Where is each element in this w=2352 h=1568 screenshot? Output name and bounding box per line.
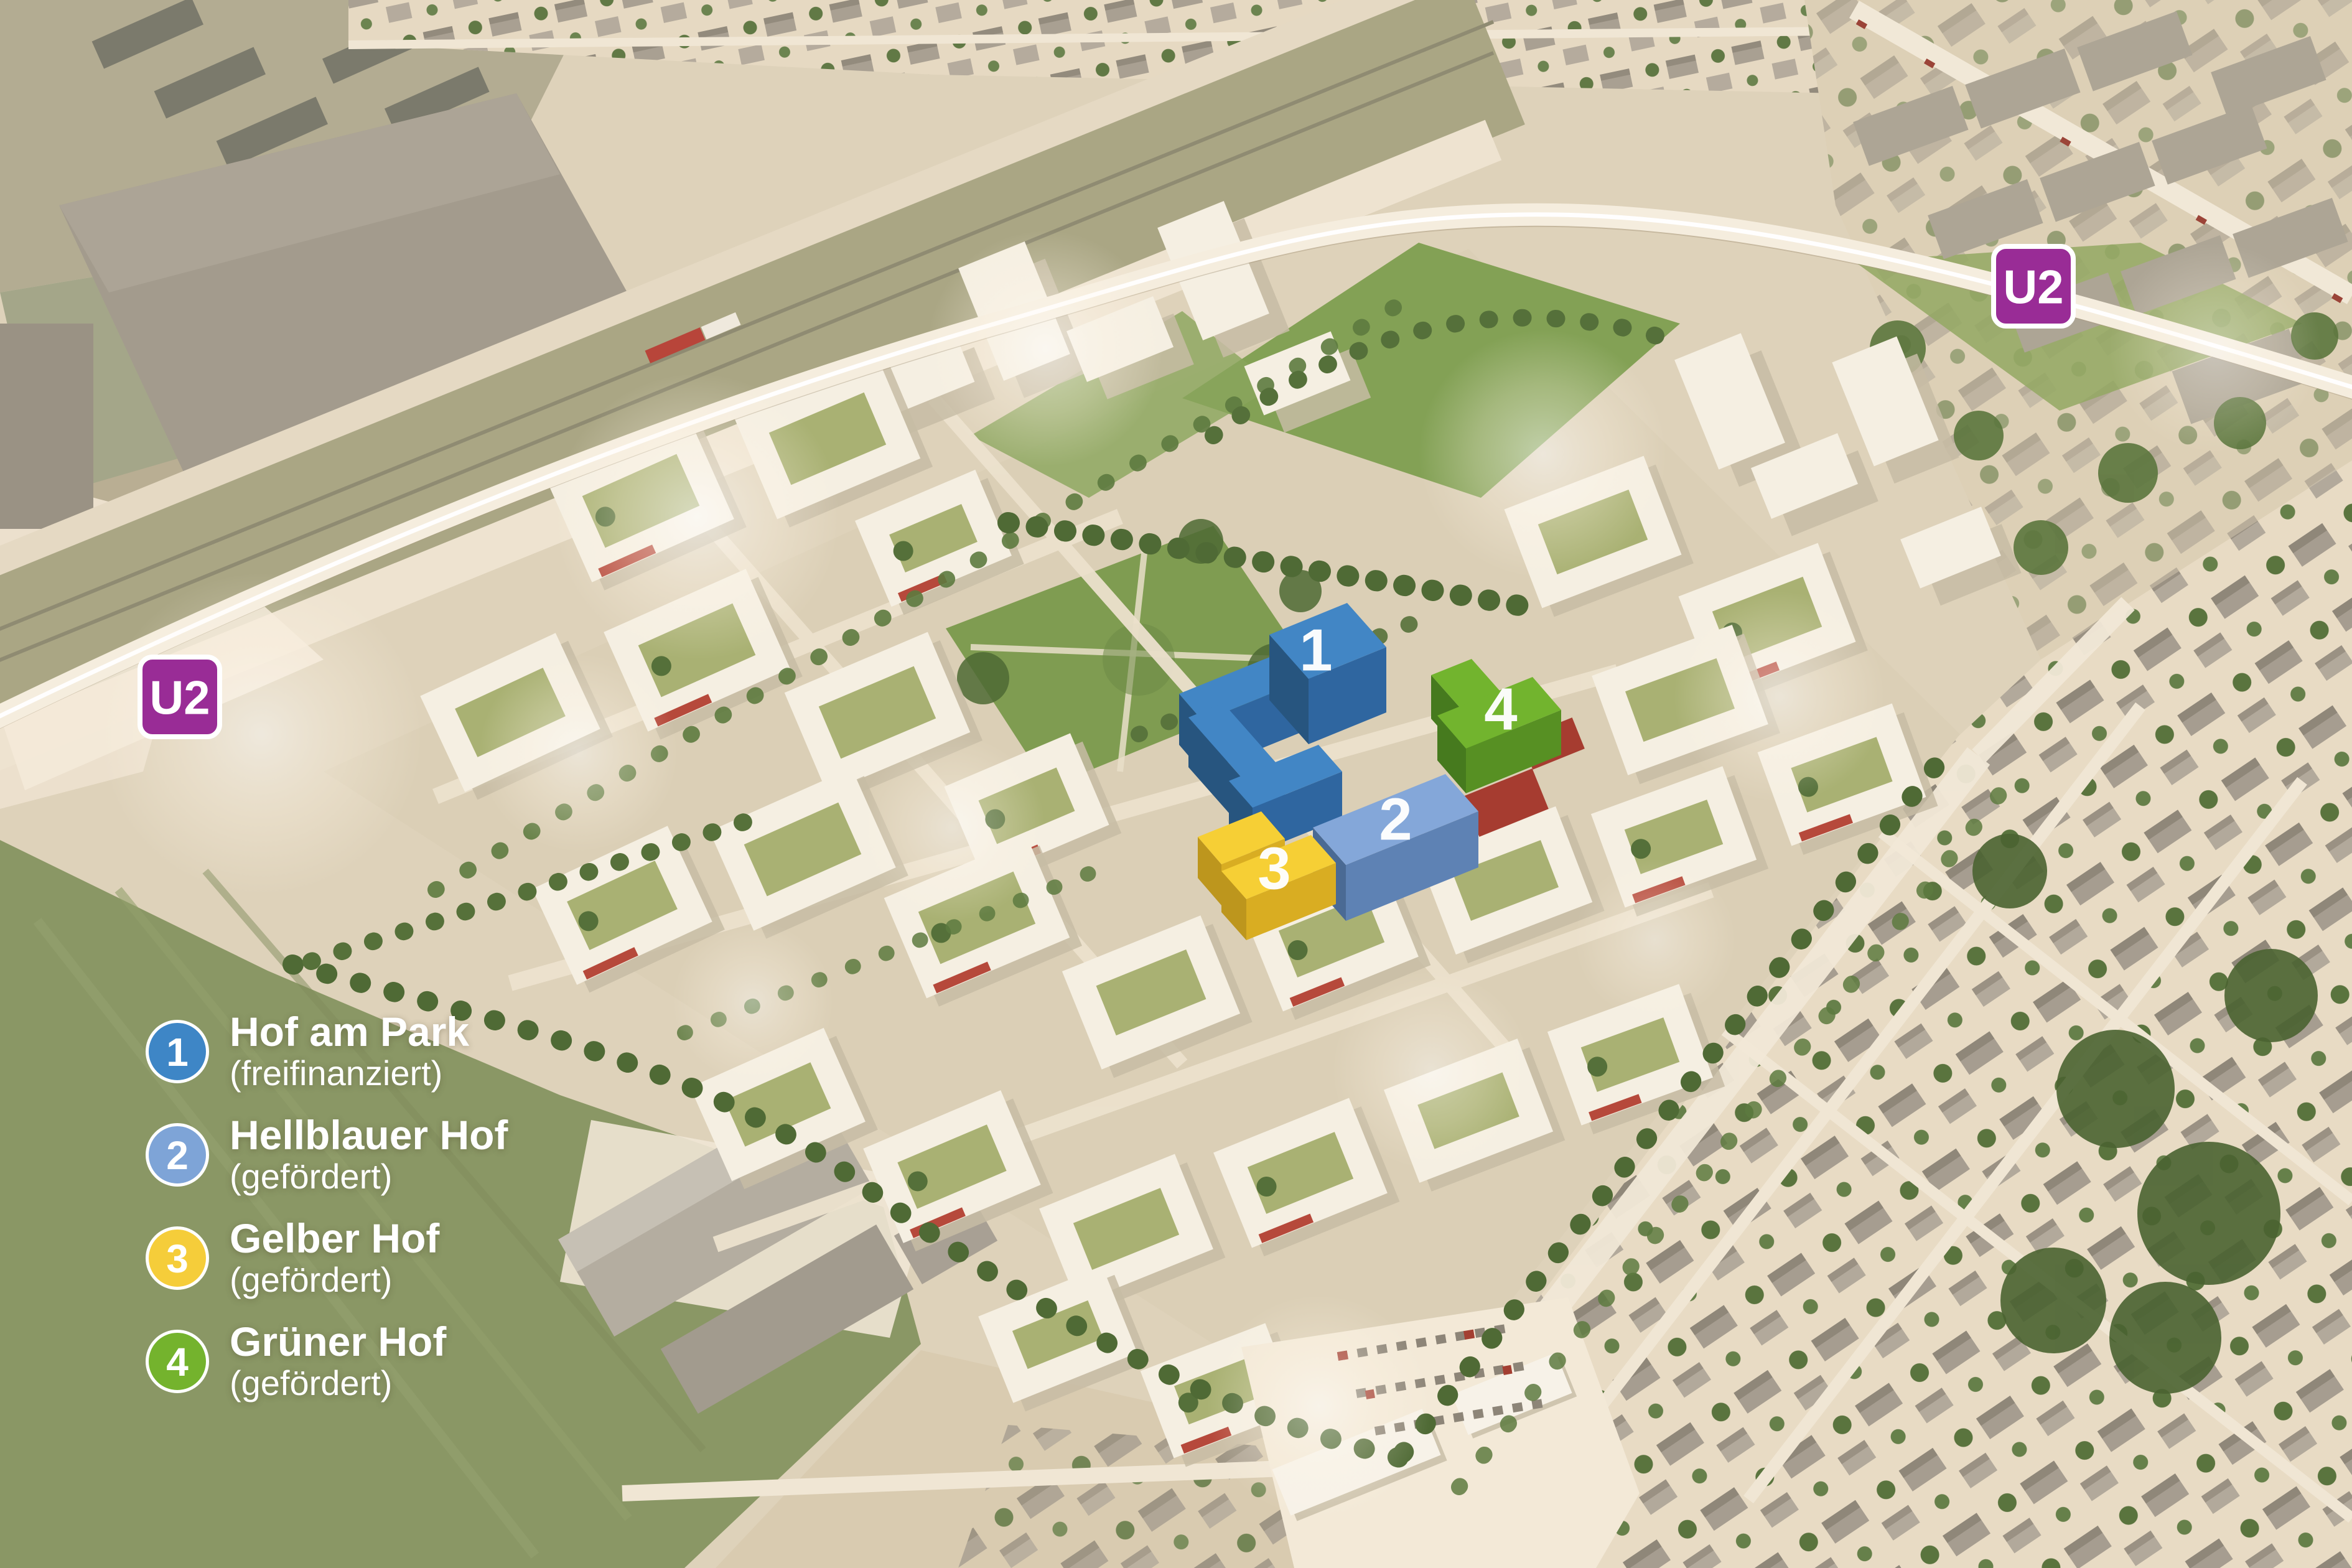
u2-badge-east: U2	[1994, 246, 2073, 326]
legend-circle-4: 4	[145, 1329, 210, 1394]
legend-item-gruener-hof: 4 Grüner Hof (gefördert)	[145, 1329, 508, 1394]
building-1-number: 1	[1299, 617, 1332, 684]
legend-circle-1: 1	[145, 1019, 210, 1084]
legend-circle-3: 3	[145, 1226, 210, 1290]
legend-title: Hellblauer Hof	[230, 1114, 508, 1156]
u2-badge-east-label: U2	[2003, 261, 2063, 314]
building-4-number: 4	[1484, 676, 1517, 743]
legend-circle-2: 2	[145, 1122, 210, 1187]
u2-badge-west-label: U2	[149, 672, 210, 725]
legend-subtitle: (freifinanziert)	[230, 1055, 469, 1092]
legend-subtitle: (gefördert)	[230, 1159, 508, 1195]
svg-text:1: 1	[166, 1030, 189, 1075]
legend: 1 Hof am Park (freifinanziert) 2 Hellbla…	[145, 1019, 508, 1432]
legend-title: Hof am Park	[230, 1011, 469, 1053]
legend-subtitle: (gefördert)	[230, 1262, 439, 1299]
u2-badge-west: U2	[140, 657, 220, 737]
svg-text:2: 2	[166, 1133, 189, 1178]
svg-text:3: 3	[166, 1236, 189, 1281]
legend-title: Gelber Hof	[230, 1218, 439, 1259]
legend-title: Grüner Hof	[230, 1321, 446, 1363]
building-2-number: 2	[1379, 786, 1412, 853]
building-3-number: 3	[1258, 836, 1290, 902]
legend-item-gelber-hof: 3 Gelber Hof (gefördert)	[145, 1226, 508, 1290]
legend-subtitle: (gefördert)	[230, 1365, 446, 1402]
legend-item-hof-am-park: 1 Hof am Park (freifinanziert)	[145, 1019, 508, 1084]
legend-item-hellblauer-hof: 2 Hellblauer Hof (gefördert)	[145, 1122, 508, 1187]
svg-text:4: 4	[166, 1340, 189, 1384]
